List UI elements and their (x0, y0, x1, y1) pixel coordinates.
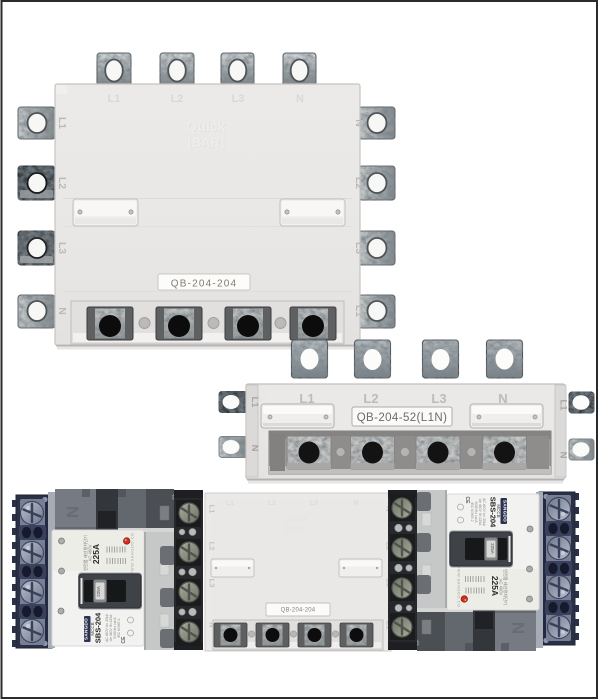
svg-text:SANGDO: SANGDO (84, 618, 89, 640)
svg-text:WWW.SANGDO.CO: WWW.SANGDO.CO (130, 532, 135, 575)
svg-text:L3: L3 (431, 391, 446, 406)
svg-text:L1: L1 (226, 500, 234, 507)
svg-text:[BAR]: [BAR] (188, 135, 225, 150)
svg-text:L1: L1 (249, 396, 260, 408)
svg-text:L2: L2 (268, 500, 276, 507)
svg-text:L1: L1 (208, 505, 217, 514)
svg-text:L3: L3 (353, 242, 365, 254)
svg-text:L2: L2 (208, 542, 217, 551)
svg-text:L3: L3 (232, 93, 245, 105)
svg-text:N: N (353, 119, 365, 127)
svg-text:L2: L2 (353, 177, 365, 189)
svg-text:L3: L3 (310, 500, 318, 507)
svg-text:QB-204-52(L1N): QB-204-52(L1N) (357, 412, 448, 424)
svg-text:N: N (353, 500, 358, 507)
svg-text:N: N (56, 307, 68, 315)
svg-text:QB-204-204: QB-204-204 (171, 279, 237, 290)
svg-text:L1: L1 (558, 399, 569, 411)
svg-text:L3: L3 (56, 242, 68, 254)
svg-text:[BAR]: [BAR] (284, 524, 308, 534)
svg-text:225A: 225A (91, 544, 101, 564)
svg-text:Quick: Quick (283, 514, 309, 524)
svg-text:L2: L2 (363, 391, 378, 406)
svg-text:IEC 60947-2: IEC 60947-2 (117, 618, 121, 637)
svg-text:N: N (296, 93, 304, 105)
svg-text:L1: L1 (353, 305, 365, 317)
svg-text:QB-204-204: QB-204-204 (281, 608, 316, 614)
svg-text:N: N (63, 506, 82, 518)
svg-text:L1: L1 (108, 93, 121, 105)
svg-text:L2: L2 (56, 177, 68, 189)
svg-text:225A: 225A (96, 586, 101, 597)
svg-text:L3: L3 (208, 579, 217, 588)
svg-text:SBS-204: SBS-204 (94, 612, 103, 643)
svg-text:N: N (249, 445, 260, 452)
svg-text:N: N (558, 452, 569, 459)
svg-text:CE: CE (121, 636, 127, 644)
svg-text:Quick: Quick (187, 118, 226, 134)
svg-text:L2: L2 (171, 93, 184, 105)
svg-text:AC 460V: AC 460V (88, 544, 93, 561)
svg-text:L1: L1 (56, 117, 68, 129)
